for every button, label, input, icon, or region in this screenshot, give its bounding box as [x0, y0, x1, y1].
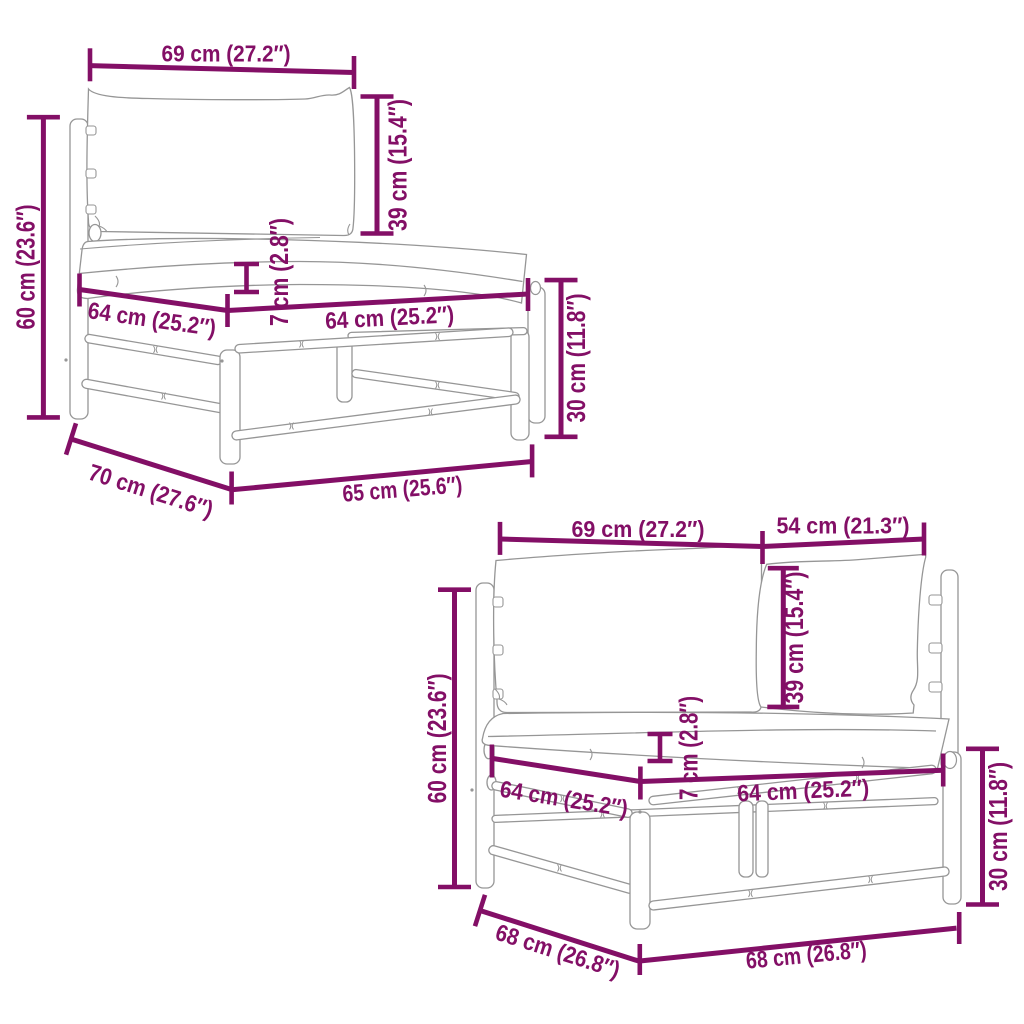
svg-text:60 cm (23.6″): 60 cm (23.6″) — [422, 673, 452, 803]
svg-text:54 cm (21.3″): 54 cm (21.3″) — [777, 513, 910, 539]
svg-text:30 cm (11.8″): 30 cm (11.8″) — [983, 762, 1013, 891]
svg-text:69 cm (27.2″): 69 cm (27.2″) — [162, 41, 291, 67]
svg-text:69 cm (27.2″): 69 cm (27.2″) — [572, 516, 705, 542]
svg-text:7 cm (2.8″): 7 cm (2.8″) — [674, 696, 704, 800]
svg-text:30 cm (11.8″): 30 cm (11.8″) — [561, 294, 591, 423]
svg-text:39 cm (15.4″): 39 cm (15.4″) — [779, 572, 809, 704]
svg-text:39 cm (15.4″): 39 cm (15.4″) — [383, 99, 413, 231]
svg-text:60 cm (23.6″): 60 cm (23.6″) — [11, 205, 41, 330]
